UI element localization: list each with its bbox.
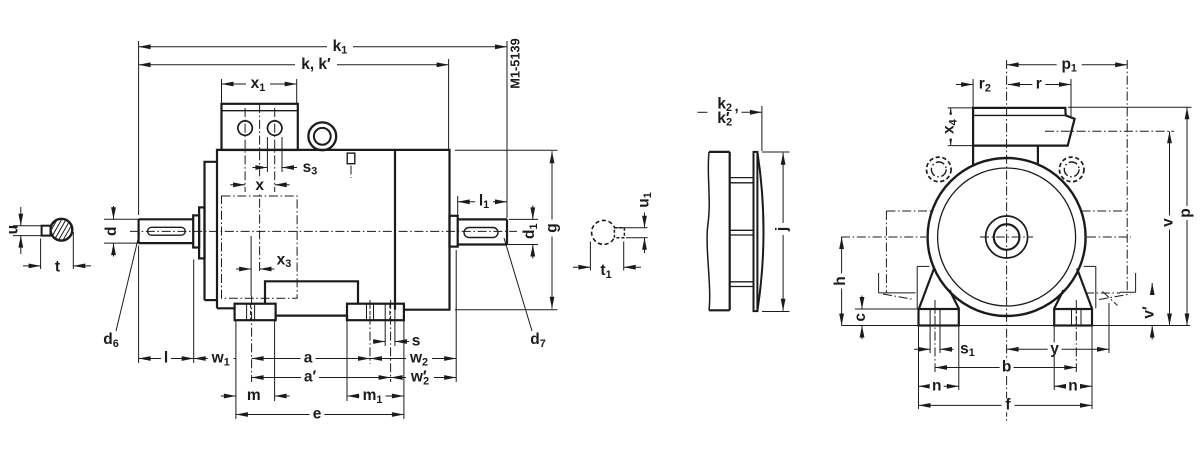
svg-text:a′: a′ (304, 369, 317, 386)
svg-text:g: g (544, 223, 561, 232)
svg-text:w′2: w′2 (410, 369, 429, 388)
svg-text:d: d (103, 226, 120, 235)
svg-text:f: f (1005, 396, 1011, 413)
svg-text:e: e (313, 406, 322, 423)
svg-text:v′: v′ (1141, 306, 1158, 319)
svg-text:r: r (1036, 76, 1042, 93)
svg-text:l: l (164, 350, 168, 367)
svg-text:h: h (832, 276, 849, 285)
svg-text:c: c (852, 313, 869, 322)
svg-text:,: , (735, 98, 739, 115)
svg-text:p: p (1177, 208, 1194, 217)
svg-text:b: b (1002, 359, 1011, 376)
svg-text:x: x (255, 177, 264, 194)
svg-text:a: a (304, 350, 313, 367)
svg-text:M1-5139: M1-5139 (508, 38, 523, 89)
svg-text:s: s (412, 333, 421, 350)
svg-text:m: m (247, 387, 261, 404)
svg-text:j: j (773, 227, 790, 232)
svg-text:y: y (1050, 340, 1059, 357)
svg-text:n: n (1068, 377, 1077, 394)
svg-text:v: v (1160, 218, 1177, 227)
svg-text:k, k′: k, k′ (301, 56, 331, 73)
svg-text:t: t (55, 259, 60, 276)
svg-text:u: u (5, 225, 22, 234)
svg-text:n: n (932, 377, 941, 394)
